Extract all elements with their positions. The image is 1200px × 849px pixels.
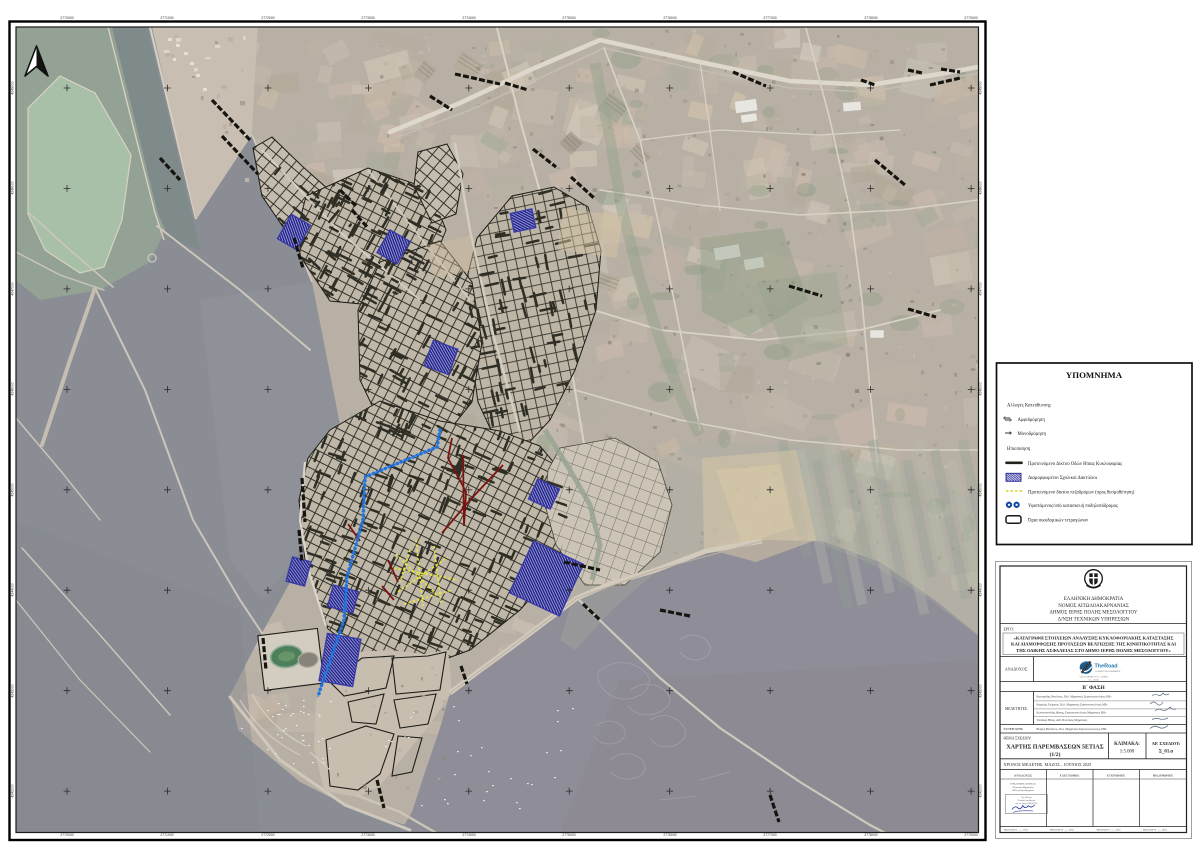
svg-text:ΝΟΜΟΣ ΑΙΤΩΛΟΑΚΑΡΝΑΝΙΑΣ: ΝΟΜΟΣ ΑΙΤΩΛΟΑΚΑΡΝΑΝΙΑΣ xyxy=(1058,604,1129,609)
svg-text:4242000: 4242000 xyxy=(11,784,15,797)
svg-text:ΘΕΜΑ ΣΧΕΔΙΟΥ:: ΘΕΜΑ ΣΧΕΔΙΟΥ: xyxy=(1004,737,1032,741)
svg-text:4243000: 4243000 xyxy=(979,684,983,697)
svg-text:1:5.000: 1:5.000 xyxy=(1120,750,1135,755)
svg-text:Όρια οικοδομικών τετραγώνων: Όρια οικοδομικών τετραγώνων xyxy=(1027,519,1089,524)
svg-text:2771000: 2771000 xyxy=(160,16,173,20)
svg-text:ΘΕΩΡΗΘΗΚΕ: ΘΕΩΡΗΘΗΚΕ xyxy=(1153,774,1173,778)
svg-text:Την Μελέτη: Την Μελέτη xyxy=(1021,797,1031,799)
svg-text:ΕΓΚΡΙΘΗΚΕ: ΕΓΚΡΙΘΗΚΕ xyxy=(1107,774,1125,778)
svg-text:4246000: 4246000 xyxy=(979,382,983,395)
svg-text:2777000: 2777000 xyxy=(763,16,776,20)
svg-text:2774000: 2774000 xyxy=(462,833,475,837)
svg-text:ΧΑΡΤΗΣ ΠΑΡΕΜΒΑΣΕΩΝ 5ΕΤΙΑΣ: ΧΑΡΤΗΣ ΠΑΡΕΜΒΑΣΕΩΝ 5ΕΤΙΑΣ xyxy=(1006,745,1103,751)
svg-text:«ΚΑΤΑΓΡΑΦΗ ΣΤΟΙΧΕΙΩΝ ΑΝΑΛΥΣΗΣ: «ΚΑΤΑΓΡΑΦΗ ΣΤΟΙΧΕΙΩΝ ΑΝΑΛΥΣΗΣ ΚΥΚΛΟΦΟΡΙΑ… xyxy=(1014,635,1174,640)
svg-text:ΥΠΟΜΝΗΜΑ: ΥΠΟΜΝΗΜΑ xyxy=(1066,370,1123,380)
svg-text:Ηπιοποίηση: Ηπιοποίηση xyxy=(1007,447,1031,452)
svg-text:ΑΝΑΔΟΧΟΣ:: ΑΝΑΔΟΧΟΣ: xyxy=(1005,667,1028,672)
svg-text:ΑΡ. ΣΧΕΔΙΟΥ:: ΑΡ. ΣΧΕΔΙΟΥ: xyxy=(1152,741,1181,746)
svg-text:TheRoad: TheRoad xyxy=(1095,664,1118,670)
svg-text:2779000: 2779000 xyxy=(964,16,977,20)
svg-text:Υφιστάμενος/υπό κατασκευή ποδη: Υφιστάμενος/υπό κατασκευή ποδηλατόδρομος xyxy=(1028,504,1118,509)
svg-text:Διαμορφωμένοι Σχολικοί Δακτύλι: Διαμορφωμένοι Σχολικοί Δακτύλιοι xyxy=(1028,476,1098,481)
svg-text:2772000: 2772000 xyxy=(261,16,274,20)
svg-text:Αμφιδρόμηση: Αμφιδρόμηση xyxy=(1018,418,1046,423)
svg-text:Καραλής Γεώργιος, Πολ. Μηχανικ: Καραλής Γεώργιος, Πολ. Μηχανικός Συγκοιν… xyxy=(1037,702,1109,706)
svg-text:2779000: 2779000 xyxy=(964,833,977,837)
svg-text:2775000: 2775000 xyxy=(562,16,575,20)
svg-text:4249000: 4249000 xyxy=(979,81,983,94)
svg-text:ΜΕΣΟΛΟΓΓΙ ..../..../2025: ΜΕΣΟΛΟΓΓΙ ..../..../2025 xyxy=(1050,830,1075,832)
svg-text:2776000: 2776000 xyxy=(663,16,676,20)
svg-text:για τον έλεγχο 18/06/2025: για τον έλεγχο 18/06/2025 xyxy=(1016,803,1038,805)
svg-text:4244000: 4244000 xyxy=(979,583,983,596)
svg-text:Δ/ΝΣΗ ΤΕΧΝΙΚΩΝ ΥΠΗΡΕΣΙΩΝ: Δ/ΝΣΗ ΤΕΧΝΙΚΩΝ ΥΠΗΡΕΣΙΩΝ xyxy=(1058,617,1130,622)
svg-text:2770000: 2770000 xyxy=(60,833,73,837)
svg-text:Μέλος Επιμελητηρίου: Μέλος Επιμελητηρίου xyxy=(1012,789,1034,792)
svg-text:ΧΡΟΝΟΣ ΜΕΛΕΤΗΣ: ΜΑΖΟΣ – ΙΟΥΝΙΟ: ΧΡΟΝΟΣ ΜΕΛΕΤΗΣ: ΜΑΖΟΣ – ΙΟΥΝΙΟΣ 2025 xyxy=(1004,762,1092,767)
svg-text:2774000: 2774000 xyxy=(462,16,475,20)
svg-text:ΜΕΣΟΛΟΓΓΙ ..../..../2025: ΜΕΣΟΛΟΓΓΙ ..../..../2025 xyxy=(1004,830,1029,832)
svg-text:ΤΗΣ ΟΔΙΚΗΣ ΑΣΦΑΛΕΙΑΣ ΣΤΟ ΔΗΜΟ: ΤΗΣ ΟΔΙΚΗΣ ΑΣΦΑΛΕΙΑΣ ΣΤΟ ΔΗΜΟ ΙΕΡΗΣ ΠΟΛΗ… xyxy=(1016,648,1171,653)
svg-text:ΚΛΙΜΑΚΑ:: ΚΛΙΜΑΚΑ: xyxy=(1114,742,1140,747)
svg-text:2771000: 2771000 xyxy=(160,833,173,837)
svg-text:ΚΑΙ ΔΙΑΜΟΡΦΩΣΗΣ ΠΡΟΤΑΣΕΩΝ ΒΕΛΤ: ΚΑΙ ΔΙΑΜΟΡΦΩΣΗΣ ΠΡΟΤΑΣΕΩΝ ΒΕΛΤΙΩΣΗΣ ΤΗΣ … xyxy=(1011,642,1176,647)
svg-text:Προτεινόμενο Δίκτυο Οδών Ηπιας: Προτεινόμενο Δίκτυο Οδών Ηπιας Κυκλοφορί… xyxy=(1028,462,1122,467)
svg-text:ΜΕΣΟΛΟΓΓΙ ..../..../2025: ΜΕΣΟΛΟΓΓΙ ..../..../2025 xyxy=(1097,830,1122,832)
svg-text:ΜΕΛΕΤΗΤΕΣ:: ΜΕΛΕΤΗΤΕΣ: xyxy=(1005,707,1028,711)
svg-text:Τσελίκας Ηλίας, Ανθ. Πολιτικός: Τσελίκας Ηλίας, Ανθ. Πολιτικός Μηχανικός xyxy=(1037,718,1089,722)
svg-text:2773000: 2773000 xyxy=(361,16,374,20)
svg-text:2776000: 2776000 xyxy=(663,833,676,837)
svg-text:Κατσαρίδης Νικόλαος, Πολ. Μηχα: Κατσαρίδης Νικόλαος, Πολ. Μηχανικός Συγκ… xyxy=(1037,694,1113,698)
svg-text:Β´ ΦΑΣΗ: Β´ ΦΑΣΗ xyxy=(1082,685,1105,691)
svg-text:4242000: 4242000 xyxy=(979,784,983,797)
svg-text:4249000: 4249000 xyxy=(11,81,15,94)
svg-text:Μονοδρόμηση: Μονοδρόμηση xyxy=(1018,432,1047,437)
svg-text:Αλλαγές Κατεύθυνσης: Αλλαγές Κατεύθυνσης xyxy=(1007,404,1051,409)
svg-text:4248000: 4248000 xyxy=(979,181,983,194)
svg-text:Βλάχος Βασίλειος, Πολ. Μηχανικ: Βλάχος Βασίλειος, Πολ. Μηχανικός Συγκοιν… xyxy=(1037,727,1107,731)
svg-text:4243000: 4243000 xyxy=(11,684,15,697)
svg-text:Σ_01.α: Σ_01.α xyxy=(1159,750,1174,755)
svg-text:Συνέταξε και Θεωρεί: Συνέταξε και Θεωρεί xyxy=(1018,799,1036,802)
svg-text:4247000: 4247000 xyxy=(979,282,983,295)
svg-text:4246000: 4246000 xyxy=(11,382,15,395)
svg-text:4248000: 4248000 xyxy=(11,181,15,194)
svg-text:4245000: 4245000 xyxy=(11,483,15,496)
svg-text:2773000: 2773000 xyxy=(361,833,374,837)
svg-text:(1/2): (1/2) xyxy=(1050,751,1061,758)
svg-text:ΕΡΓΟ:: ΕΡΓΟ: xyxy=(1004,628,1015,632)
svg-text:4247000: 4247000 xyxy=(11,282,15,295)
svg-text:4244000: 4244000 xyxy=(11,583,15,596)
svg-text:2777000: 2777000 xyxy=(763,833,776,837)
svg-text:ΕΛΕΓΧΘΗΚΕ: ΕΛΕΓΧΘΗΚΕ xyxy=(1060,774,1080,778)
svg-text:Τ.Κ. 10558: Τ.Κ. 10558 xyxy=(1088,679,1099,681)
svg-text:ΔΗΜΟΣ ΙΕΡΗΣ ΠΟΛΗΣ ΜΕΣΟΛΟΓΓΙΟΥ: ΔΗΜΟΣ ΙΕΡΗΣ ΠΟΛΗΣ ΜΕΣΟΛΟΓΓΙΟΥ xyxy=(1050,611,1138,616)
svg-text:4245000: 4245000 xyxy=(979,483,983,496)
svg-text:2772000: 2772000 xyxy=(261,833,274,837)
svg-text:2778000: 2778000 xyxy=(864,16,877,20)
svg-text:ΕΛΛΗΝΙΚΗ ΔΗΜΟΚΡΑΤΙΑ: ΕΛΛΗΝΙΚΗ ΔΗΜΟΚΡΑΤΙΑ xyxy=(1064,597,1124,602)
svg-text:2778000: 2778000 xyxy=(864,833,877,837)
svg-text:2775000: 2775000 xyxy=(562,833,575,837)
svg-text:Κωνσταντινίδης Φάνης, Συγκοινω: Κωνσταντινίδης Φάνης, Συγκοινωνιολόγος Μ… xyxy=(1037,710,1107,714)
svg-text:CONSULTING ENGINEERS: CONSULTING ENGINEERS xyxy=(1095,671,1121,673)
svg-text:ΣΥΝΕΡΓΑΤΗΣ:: ΣΥΝΕΡΓΑΤΗΣ: xyxy=(1004,727,1024,731)
svg-text:ΑΝΑΔΟΧΟΣ: ΑΝΑΔΟΧΟΣ xyxy=(1014,774,1032,778)
svg-text:ΟΔΟΣ ΝΑΠΑΚΤΗ 12 • Α΢ΗΝΑ: ΟΔΟΣ ΝΑΠΑΚΤΗ 12 • Α΢ΗΝΑ xyxy=(1079,676,1108,679)
svg-text:Προτεινόμενο δίκτυο πεζοδρόμων: Προτεινόμενο δίκτυο πεζοδρόμων (προς θεσ… xyxy=(1028,489,1135,495)
svg-text:2770000: 2770000 xyxy=(60,16,73,20)
svg-text:ΜΕΣΟΛΟΓΓΙ ..../..../2025: ΜΕΣΟΛΟΓΓΙ ..../..../2025 xyxy=(1143,830,1168,832)
